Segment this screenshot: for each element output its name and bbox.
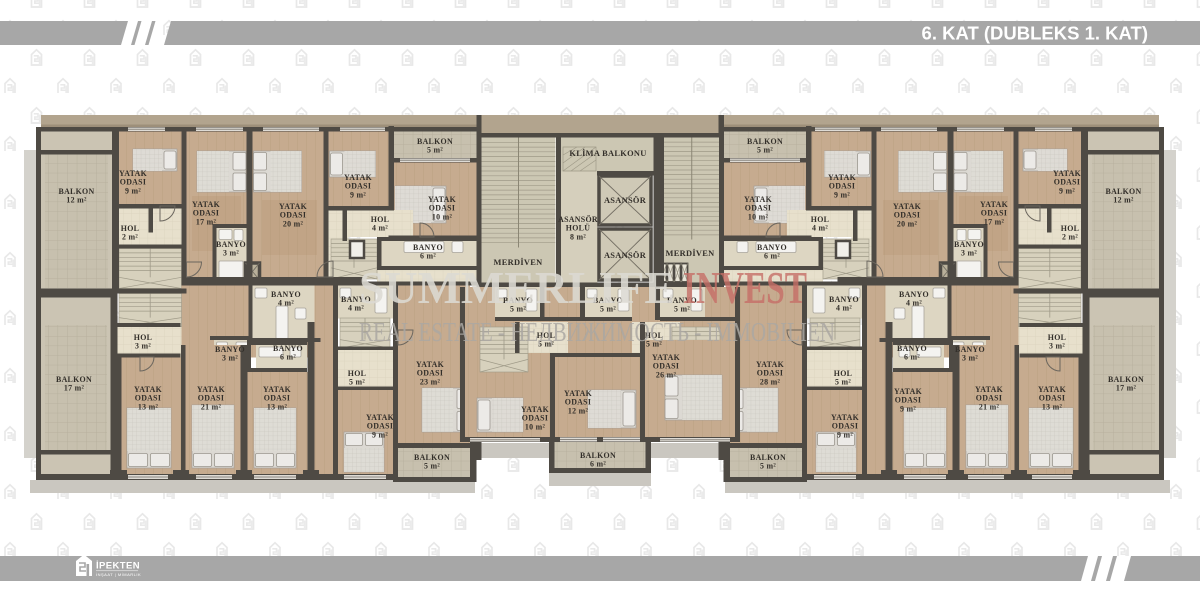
svg-text:REAL ESTATE - НЕДВИЖИМОСТЬ - I: REAL ESTATE - НЕДВИЖИМОСТЬ - IMMOBILIEN [359,317,835,347]
svg-text:MERDİVEN: MERDİVEN [666,248,715,258]
svg-text:KLİMA BALKONU: KLİMA BALKONU [569,148,646,158]
svg-text:HOL5 m²: HOL5 m² [834,369,852,387]
svg-text:İNŞAAT | MİMARLIK: İNŞAAT | MİMARLIK [96,572,141,577]
svg-text:SUMMERLIFE: SUMMERLIFE [359,262,675,313]
svg-text:HOL2 m²: HOL2 m² [1061,224,1079,242]
svg-text:HOL5 m²: HOL5 m² [348,369,366,387]
svg-text:HOL4 m²: HOL4 m² [811,215,829,233]
svg-text:INVEST: INVEST [683,262,807,313]
svg-text:6. KAT (DUBLEKS 1. KAT): 6. KAT (DUBLEKS 1. KAT) [922,23,1148,44]
svg-text:HOL4 m²: HOL4 m² [371,215,389,233]
svg-text:ASANSÖR: ASANSÖR [604,196,647,205]
svg-text:HOL2 m²: HOL2 m² [121,224,139,242]
svg-text:ASANSÖR: ASANSÖR [604,251,647,260]
svg-text:HOL3 m²: HOL3 m² [134,333,152,351]
svg-text:İPEKTEN: İPEKTEN [96,561,140,572]
svg-text:HOL3 m²: HOL3 m² [1048,333,1066,351]
